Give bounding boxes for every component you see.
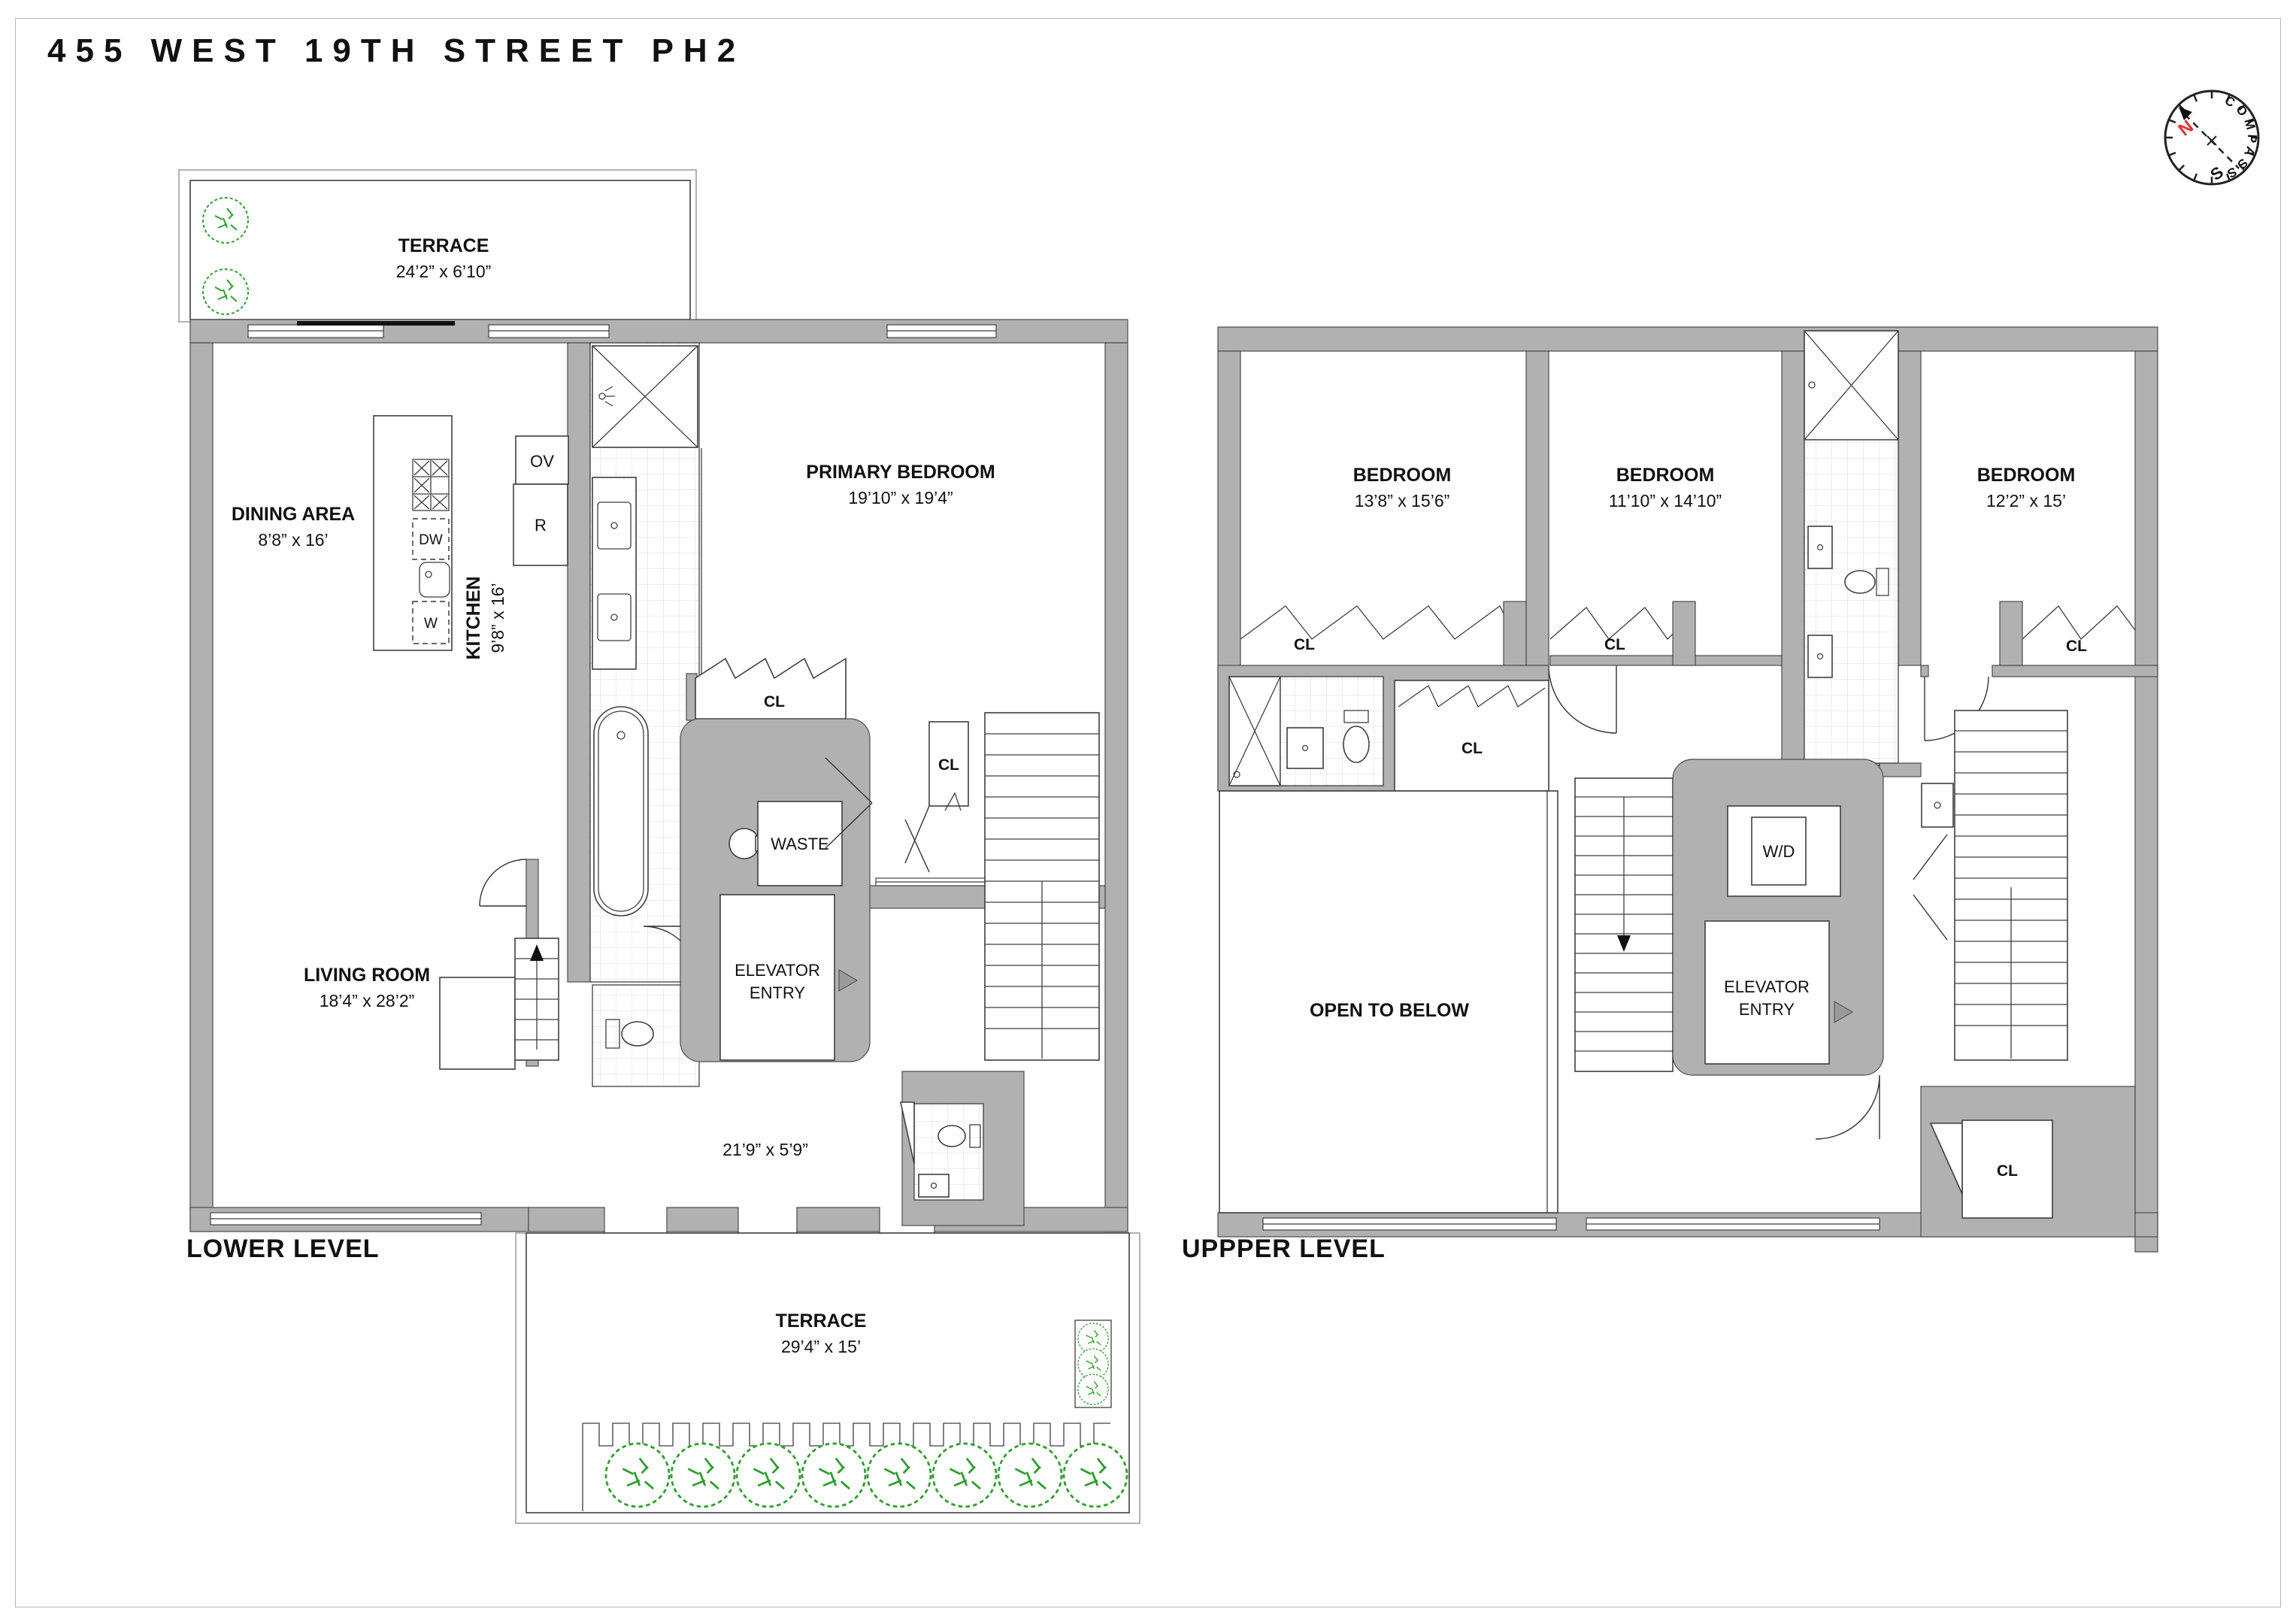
double-door: [1913, 835, 1947, 940]
kitchen-island: DW W: [374, 416, 452, 650]
refrigerator-label: R: [535, 516, 547, 535]
dishwasher-label: DW: [419, 532, 443, 548]
stairs-down: [1575, 778, 1673, 1071]
room-label-bedroom-3: BEDROOM: [1977, 465, 2076, 486]
washer-label: W: [424, 616, 438, 632]
room-dim-primary-bedroom: 19’10” x 19’4”: [848, 488, 953, 507]
elevator-label: ENTRY: [750, 983, 805, 1002]
sink: [1922, 783, 1953, 827]
room-label-dining: DINING AREA: [232, 504, 355, 525]
closet-bedroom-1: CL: [1240, 601, 1526, 665]
interior-stairs-up: [440, 859, 559, 1069]
waste-label: WASTE: [771, 835, 828, 853]
bush-icon: [868, 1444, 931, 1507]
elevator-label: ELEVATOR: [1724, 977, 1810, 996]
room-label-primary-bedroom: PRIMARY BEDROOM: [806, 462, 995, 483]
bush-icon: [1078, 1374, 1108, 1404]
bush-icon: [1064, 1444, 1127, 1507]
page-title: 455 WEST 19TH STREET PH2: [47, 32, 745, 69]
room-label-terrace-top: TERRACE: [398, 235, 489, 256]
room-label-terrace-bottom: TERRACE: [776, 1310, 867, 1332]
toilet: [938, 1126, 965, 1147]
closet-label: CL: [1604, 636, 1625, 653]
closet-label: CL: [2066, 638, 2087, 655]
open-to-below-label: OPEN TO BELOW: [1310, 1000, 1469, 1021]
closet-central: CL: [686, 659, 846, 720]
upper-hall-bathroom: [1804, 331, 1898, 816]
bush-icon: [933, 1444, 996, 1507]
door-arc: [1549, 665, 1616, 733]
upper-left-bathroom: CL: [1218, 665, 1549, 791]
upper-level-plan: BEDROOM 13’8” x 15’6” CL BEDROOM 11’10” …: [1182, 327, 2158, 1263]
room-dim-terrace-bottom: 29’4” x 15’: [781, 1337, 861, 1356]
room-dim-kitchen: 9’8” x 16’: [488, 583, 507, 653]
closet-corridor: [1395, 680, 1549, 791]
closet-label: CL: [938, 756, 959, 774]
closet-label: CL: [764, 693, 785, 710]
closet-doors: [905, 806, 929, 872]
toilet: [1343, 726, 1369, 762]
closet-label: CL: [1997, 1162, 2018, 1180]
elevator-label: ELEVATOR: [735, 961, 820, 980]
building-stairs-lower: [985, 713, 1099, 1060]
oven-label: OV: [530, 452, 554, 471]
compass-icon: N S COMPASS: [2165, 91, 2259, 184]
hallway-dim: 21’9” x 5’9”: [722, 1140, 808, 1159]
floor-plan-page: 455 WEST 19TH STREET PH2 N S COMPASS TER…: [0, 0, 2296, 1624]
bush-icon: [671, 1444, 735, 1507]
room-dim-bedroom-2: 11’10” x 14’10”: [1609, 491, 1722, 511]
closet-bottom-right: CL: [1921, 1086, 2135, 1237]
floor-plan-canvas: 455 WEST 19TH STREET PH2 N S COMPASS TER…: [0, 0, 2296, 1624]
building-stairs-upper: [1955, 710, 2067, 1060]
sink: [1808, 526, 1832, 568]
sink: [919, 1174, 949, 1197]
toilet: [622, 1022, 653, 1046]
room-dim-bedroom-3: 12’2” x 15’: [1986, 491, 2066, 511]
room-dim-terrace-top: 24’2” x 6’10”: [396, 262, 492, 281]
room-label-bedroom-1: BEDROOM: [1353, 465, 1452, 486]
toilet: [1845, 571, 1875, 593]
room-label-living: LIVING ROOM: [304, 965, 430, 986]
bush-icon: [203, 198, 248, 243]
room-label-kitchen: KITCHEN: [463, 576, 484, 659]
bathtub: [594, 707, 648, 916]
room-dim-living: 18’4” x 28’2”: [320, 991, 415, 1010]
upper-level-title: UPPPER LEVEL: [1182, 1235, 1386, 1263]
closet-label: CL: [1294, 636, 1315, 653]
lower-level-plan: TERRACE 24’2” x 6’10” DINING A: [179, 170, 1140, 1523]
kitchen-counter-beam: [297, 321, 455, 326]
door-arc: [1816, 1075, 1880, 1139]
bush-icon: [606, 1444, 669, 1507]
powder-room: [901, 1071, 1024, 1226]
room-dim-dining: 8’8” x 16’: [258, 530, 328, 550]
sink: [1287, 728, 1323, 768]
lower-terrace-bottom: TERRACE 29’4” x 15’: [516, 1233, 1140, 1523]
bush-icon: [737, 1444, 800, 1507]
closet-label: CL: [1462, 740, 1483, 757]
bush-icon: [998, 1444, 1062, 1507]
sink: [1808, 635, 1832, 677]
waste-chute: [729, 829, 759, 859]
washer-dryer-label: W/D: [1763, 842, 1795, 861]
room-label-bedroom-2: BEDROOM: [1616, 465, 1715, 486]
lower-level-title: LOWER LEVEL: [186, 1235, 380, 1263]
elevator-label: ENTRY: [1739, 1000, 1795, 1019]
room-dim-bedroom-1: 13’8” x 15’6”: [1355, 491, 1450, 511]
bush-icon: [802, 1444, 865, 1507]
bush-icon: [203, 269, 248, 314]
closet-bedroom-3: CL: [2000, 601, 2135, 665]
